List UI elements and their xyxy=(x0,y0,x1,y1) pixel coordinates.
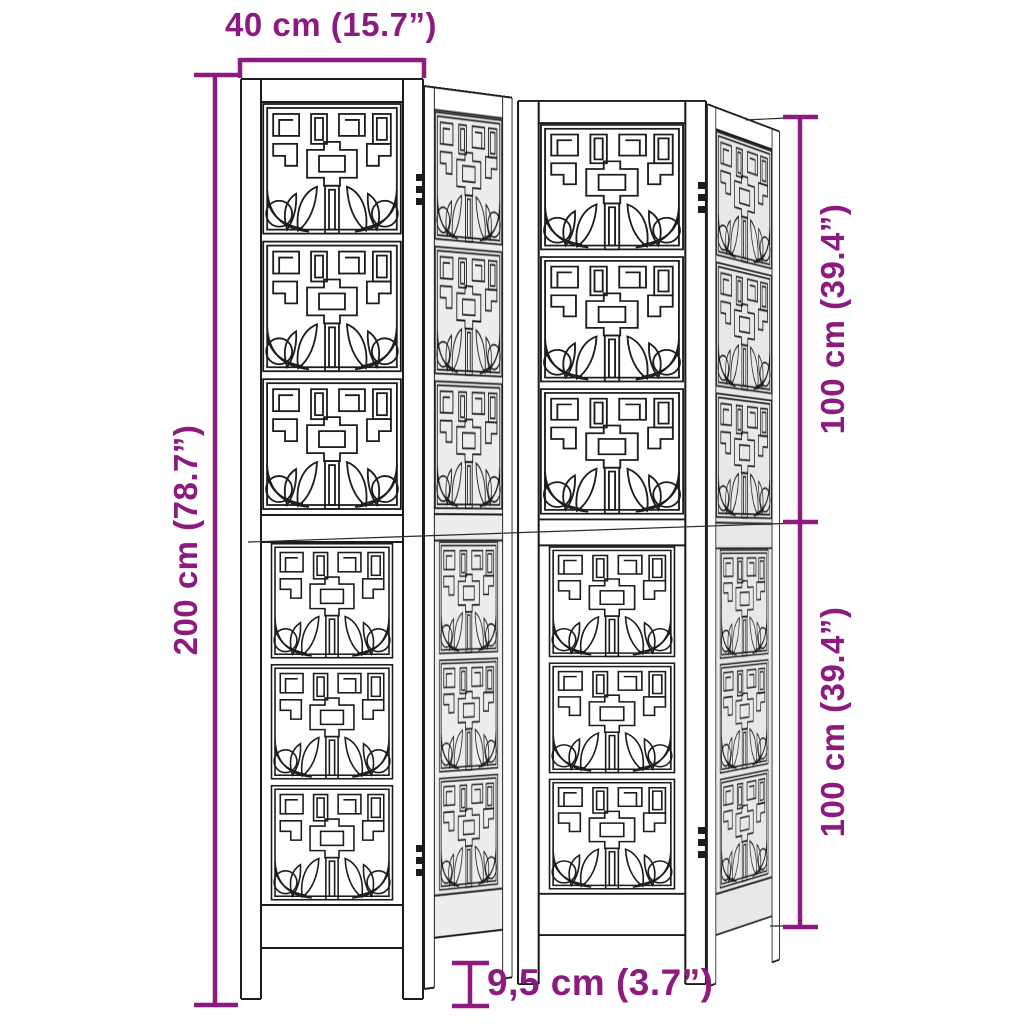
divider-panel-1 xyxy=(240,78,424,1000)
right-lower-height-label: 100 cm (39.4”) xyxy=(814,572,852,872)
divider-panel-3 xyxy=(517,100,707,985)
product-dimension-diagram: 40 cm (15.7”) 200 cm (78.7”) 100 cm (39.… xyxy=(0,0,1024,1024)
top-width-label: 40 cm (15.7”) xyxy=(181,6,481,44)
divider-panel-4 xyxy=(707,103,780,988)
divider-panel-2 xyxy=(424,85,513,990)
right-upper-height-label: 100 cm (39.4”) xyxy=(814,169,852,469)
left-height-label: 200 cm (78.7”) xyxy=(167,390,205,690)
bottom-depth-label: 9,5 cm (3.7”) xyxy=(487,962,807,1004)
